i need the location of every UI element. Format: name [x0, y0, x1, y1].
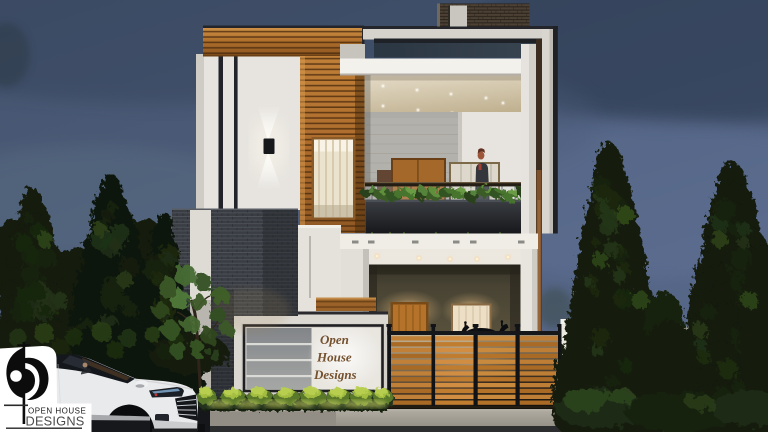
svg-text:DESIGNS: DESIGNS — [26, 414, 85, 429]
svg-text:Open: Open — [320, 332, 349, 347]
svg-text:House: House — [316, 350, 352, 365]
svg-text:Designs: Designs — [313, 367, 357, 382]
